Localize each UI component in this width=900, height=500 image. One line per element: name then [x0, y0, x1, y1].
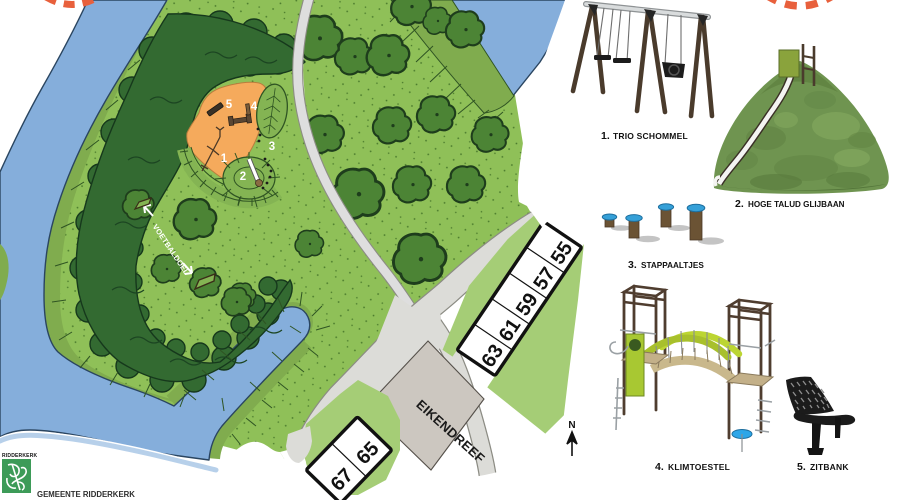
- svg-text:GEMEENTE RIDDERKERK: GEMEENTE RIDDERKERK: [37, 490, 135, 499]
- svg-text:3.: 3.: [628, 259, 637, 271]
- svg-text:RIDDERKERK: RIDDERKERK: [2, 453, 38, 459]
- svg-text:5.: 5.: [797, 461, 806, 473]
- svg-text:1.: 1.: [601, 130, 610, 142]
- svg-text:5: 5: [226, 99, 233, 111]
- svg-text:STAPPAALTJES: STAPPAALTJES: [641, 261, 704, 270]
- svg-text:1: 1: [221, 153, 228, 165]
- svg-text:4: 4: [251, 101, 258, 113]
- svg-text:HOGE TALUD GLIJBAAN: HOGE TALUD GLIJBAAN: [748, 200, 845, 209]
- svg-text:N: N: [568, 420, 575, 431]
- svg-text:ZITBANK: ZITBANK: [810, 462, 849, 472]
- svg-text:KLIMTOESTEL: KLIMTOESTEL: [668, 462, 730, 472]
- svg-text:TRIO SCHOMMEL: TRIO SCHOMMEL: [613, 131, 688, 141]
- svg-text:2.: 2.: [735, 198, 744, 210]
- svg-text:3: 3: [269, 141, 275, 153]
- svg-text:4.: 4.: [655, 461, 664, 473]
- svg-text:2: 2: [240, 171, 246, 183]
